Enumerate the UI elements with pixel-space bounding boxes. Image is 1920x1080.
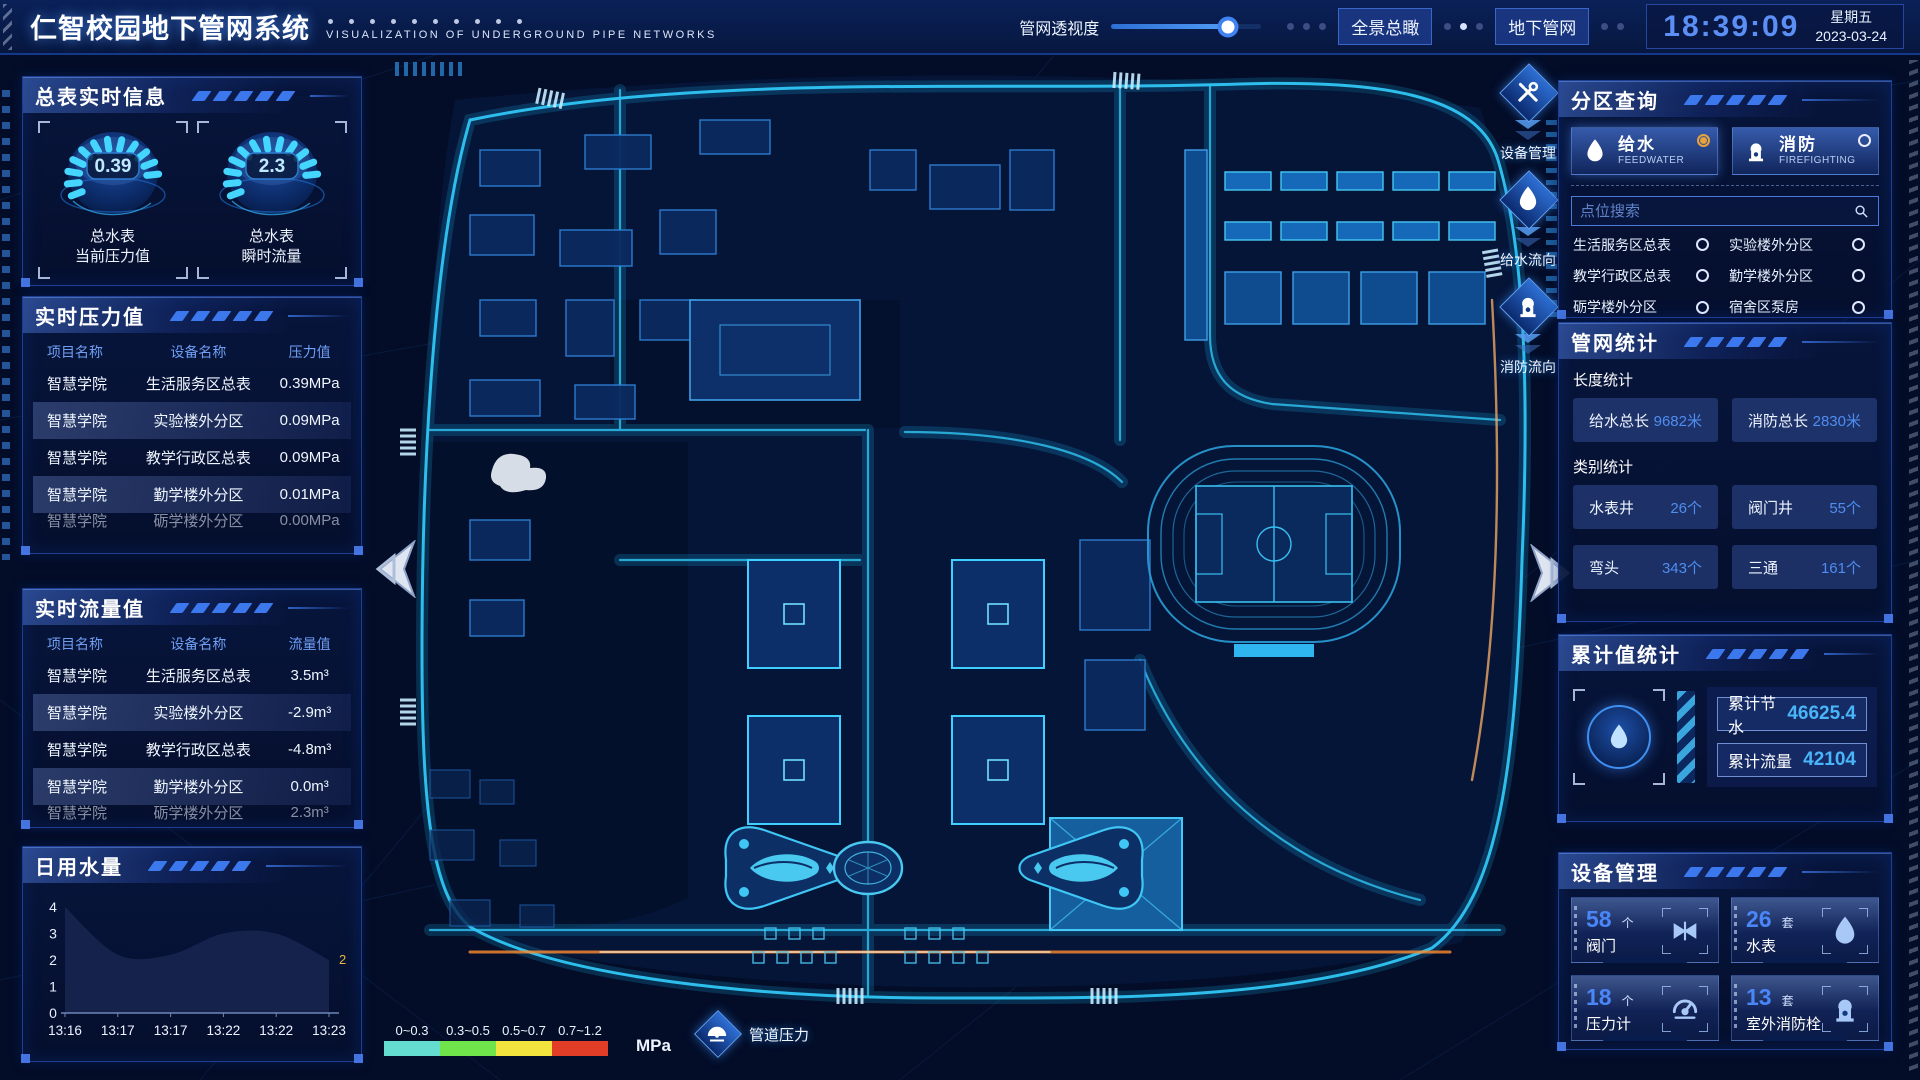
flow-table: 项目名称设备名称流量值智慧学院生活服务区总表3.5m³智慧学院实验楼外分区-2.… xyxy=(23,631,361,820)
app-subtitle-block: VISUALIZATION OF UNDERGROUND PIPE NETWOR… xyxy=(326,13,717,41)
master-meter-panel: 总表实时信息 0.39 总水表当前压力值 2.3 总水表瞬时流量 xyxy=(22,76,362,286)
point-search xyxy=(1571,196,1879,226)
slash-decoration xyxy=(1687,337,1792,347)
slash-decoration xyxy=(151,861,256,871)
map-tool-stack: 设备管理 给水流向 消防流向 xyxy=(1488,66,1568,387)
dashboard-root: { "header": { "title": "仁智校园地下管网系统", "su… xyxy=(0,0,1920,1080)
cumulative-stats-panel: 累计值统计 累计节水46625.4累计流量42104 xyxy=(1558,634,1892,822)
panel-header: 日用水量 xyxy=(23,847,361,883)
pressure-gauge-icon xyxy=(1669,993,1701,1025)
slash-decoration xyxy=(1687,95,1792,105)
cumulative-row: 累计节水46625.4 xyxy=(1717,697,1867,731)
zone-option[interactable]: 生活服务区总表 xyxy=(1573,234,1721,255)
svg-text:13:22: 13:22 xyxy=(259,1023,293,1038)
pipe-network-stats-panel: 管网统计 长度统计 给水总长9682米消防总长2830米 类别统计 水表井26个… xyxy=(1558,322,1892,622)
panel-title: 实时流量值 xyxy=(35,593,145,622)
clock-time: 18:39:09 xyxy=(1663,10,1799,44)
legend-range-label: 0.5~0.7 xyxy=(496,1023,552,1038)
svg-text:3: 3 xyxy=(49,926,57,942)
pipe-opacity-slider: 管网透视度 xyxy=(1019,15,1261,39)
gauge-card: 0.39 总水表当前压力值 xyxy=(38,121,188,279)
gauge-dial: 2.3 xyxy=(209,121,335,233)
slider-track[interactable] xyxy=(1111,24,1261,29)
table-row: 智慧学院勤学楼外分区0.01MPa xyxy=(33,476,351,513)
device-card-阀门[interactable]: 58个 阀门 xyxy=(1571,897,1719,963)
legend-color-segment xyxy=(552,1041,608,1056)
panel-header: 分区查询 xyxy=(1559,81,1891,117)
daily-water-panel: 日用水量 0123413:1613:1713:1713:2213:2213:23… xyxy=(22,846,362,1062)
gauge-label: 总水表瞬时流量 xyxy=(241,227,301,266)
table-row: 智慧学院砺学楼外分区0.00MPa xyxy=(33,513,351,528)
stat-box: 弯头343个 xyxy=(1573,545,1718,589)
panel-title: 总表实时信息 xyxy=(35,81,167,110)
slash-decoration xyxy=(195,91,300,101)
legend-color-segment xyxy=(496,1041,552,1056)
clock-weekday: 星期五 xyxy=(1830,8,1872,27)
slider-knob[interactable] xyxy=(1218,16,1239,37)
dashed-divider xyxy=(1571,185,1879,186)
table-row: 智慧学院勤学楼外分区0.0m³ xyxy=(33,768,351,805)
water-badge xyxy=(1573,689,1665,785)
panorama-button[interactable]: 全景总瞰 xyxy=(1338,8,1432,45)
panel-header: 实时流量值 xyxy=(23,589,361,625)
zone-tab-firefighting[interactable]: 消防FIREFIGHTING xyxy=(1732,127,1879,175)
table-header-row: 项目名称设备名称流量值 xyxy=(33,631,351,657)
device-card-室外消防栓[interactable]: 13套 室外消防栓 xyxy=(1731,975,1879,1041)
clock: 18:39:09 星期五 2023-03-24 xyxy=(1646,4,1904,50)
svg-text:13:22: 13:22 xyxy=(207,1023,241,1038)
stat-box: 水表井26个 xyxy=(1573,485,1718,529)
zone-tabs: 给水FEEDWATER 消防FIREFIGHTING xyxy=(1559,123,1891,185)
pipe-pressure-label: 管道压力 xyxy=(749,1024,809,1045)
gauge-label: 总水表当前压力值 xyxy=(75,227,150,266)
svg-text:2.3: 2.3 xyxy=(258,156,284,177)
dots-decoration xyxy=(1287,23,1326,30)
device-management-panel: 设备管理 58个 阀门 26套 水表 18个 压力计 13套 室外消防栓 xyxy=(1558,852,1892,1050)
search-icon xyxy=(1853,203,1870,220)
length-stats-label: 长度统计 xyxy=(1559,365,1891,398)
device-card-水表[interactable]: 26套 水表 xyxy=(1731,897,1879,963)
pressure-table: 项目名称设备名称压力值智慧学院生活服务区总表0.39MPa智慧学院实验楼外分区0… xyxy=(23,339,361,528)
valve-icon xyxy=(1669,915,1701,947)
device-card-压力计[interactable]: 18个 压力计 xyxy=(1571,975,1719,1041)
option-radio[interactable] xyxy=(1852,301,1865,314)
svg-text:0.39: 0.39 xyxy=(94,156,131,177)
table-row: 智慧学院生活服务区总表0.39MPa xyxy=(33,365,351,402)
search-input[interactable] xyxy=(1580,203,1853,220)
zone-option-list: 生活服务区总表实验楼外分区教学行政区总表勤学楼外分区砺学楼外分区宿舍区泵房 xyxy=(1559,234,1891,318)
option-radio[interactable] xyxy=(1696,301,1709,314)
slider-label: 管网透视度 xyxy=(1019,15,1099,39)
header-dots-decoration xyxy=(328,19,717,24)
stat-box: 阀门井55个 xyxy=(1732,485,1877,529)
left-edge-decoration xyxy=(2,90,10,560)
option-radio[interactable] xyxy=(1852,269,1865,282)
collapse-left-arrow[interactable] xyxy=(370,540,418,598)
panel-header: 设备管理 xyxy=(1559,853,1891,889)
gauge-card: 2.3 总水表瞬时流量 xyxy=(197,121,347,279)
option-radio[interactable] xyxy=(1696,238,1709,251)
water-drop-icon xyxy=(1582,138,1608,164)
tool-label: 给水流向 xyxy=(1500,250,1556,270)
water-drop-icon xyxy=(1829,915,1861,947)
svg-text:4: 4 xyxy=(49,899,57,915)
zone-option[interactable]: 砺学楼外分区 xyxy=(1573,297,1721,318)
svg-text:13:17: 13:17 xyxy=(101,1023,135,1038)
zone-option[interactable]: 实验楼外分区 xyxy=(1729,234,1877,255)
pressure-legend: 0~0.30.3~0.50.5~0.70.7~1.2 MPa 管道压力 xyxy=(384,1012,809,1056)
cumulative-row: 累计流量42104 xyxy=(1717,743,1867,777)
tool-label: 设备管理 xyxy=(1500,143,1556,163)
zone-option[interactable]: 教学行政区总表 xyxy=(1573,265,1721,286)
slash-decoration xyxy=(173,311,278,321)
water-drop-icon xyxy=(1514,185,1542,213)
svg-text:2: 2 xyxy=(339,952,346,967)
zone-option[interactable]: 勤学楼外分区 xyxy=(1729,265,1877,286)
table-row: 智慧学院教学行政区总表-4.8m³ xyxy=(33,731,351,768)
svg-text:13:17: 13:17 xyxy=(154,1023,188,1038)
wrench-icon xyxy=(1514,78,1542,106)
table-row: 智慧学院生活服务区总表3.5m³ xyxy=(33,657,351,694)
panel-header: 实时压力值 xyxy=(23,297,361,333)
pressure-gauge-icon xyxy=(693,1012,741,1056)
app-header: 仁智校园地下管网系统 VISUALIZATION OF UNDERGROUND … xyxy=(0,0,1920,55)
pipe-pressure-flag: 管道压力 xyxy=(693,1012,809,1056)
table-row: 智慧学院砺学楼外分区2.3m³ xyxy=(33,805,351,820)
panel-header: 管网统计 xyxy=(1559,323,1891,359)
legend-color-segment xyxy=(384,1041,440,1056)
stat-box: 给水总长9682米 xyxy=(1573,398,1718,442)
legend-range-label: 0~0.3 xyxy=(384,1023,440,1038)
right-edge-decoration xyxy=(1909,60,1918,1072)
panel-title: 设备管理 xyxy=(1571,857,1659,886)
legend-color-segment xyxy=(440,1041,496,1056)
map-tool-给水流向[interactable]: 给水流向 xyxy=(1499,173,1557,270)
svg-text:0: 0 xyxy=(49,1005,57,1021)
panel-header: 总表实时信息 xyxy=(23,77,361,113)
hydrant-icon xyxy=(1514,292,1542,320)
tab-radio[interactable] xyxy=(1858,134,1871,147)
stat-box: 三通161个 xyxy=(1732,545,1877,589)
panel-title: 管网统计 xyxy=(1571,327,1659,356)
zone-tab-feedwater[interactable]: 给水FEEDWATER xyxy=(1571,127,1718,175)
map-top-tick-decoration xyxy=(395,62,467,76)
cumulative-content: 累计节水46625.4累计流量42104 xyxy=(1559,677,1891,797)
gauge-dial: 0.39 xyxy=(50,121,176,233)
legend-range-label: 0.3~0.5 xyxy=(440,1023,496,1038)
tab-radio[interactable] xyxy=(1697,134,1710,147)
svg-text:1: 1 xyxy=(49,979,57,995)
underground-pipes-button[interactable]: 地下管网 xyxy=(1495,8,1589,45)
legend-color-bar xyxy=(384,1041,608,1056)
slash-decoration xyxy=(1709,649,1814,659)
svg-text:13:16: 13:16 xyxy=(48,1023,82,1038)
svg-text:2: 2 xyxy=(49,952,57,968)
dots-decoration xyxy=(1444,23,1483,30)
svg-text:13:23: 13:23 xyxy=(312,1023,346,1038)
realtime-pressure-panel: 实时压力值 项目名称设备名称压力值智慧学院生活服务区总表0.39MPa智慧学院实… xyxy=(22,296,362,554)
legend-unit: MPa xyxy=(636,1036,671,1056)
panel-title: 累计值统计 xyxy=(1571,639,1681,668)
map-tool-消防流向[interactable]: 消防流向 xyxy=(1499,280,1557,377)
map-tool-设备管理[interactable]: 设备管理 xyxy=(1499,66,1557,163)
category-stats-label: 类别统计 xyxy=(1559,452,1891,485)
app-subtitle: VISUALIZATION OF UNDERGROUND PIPE NETWOR… xyxy=(326,29,717,41)
panel-title: 日用水量 xyxy=(35,851,123,880)
cumulative-values: 累计节水46625.4累计流量42104 xyxy=(1707,687,1877,787)
slash-decoration xyxy=(1687,867,1792,877)
app-title: 仁智校园地下管网系统 xyxy=(30,7,310,46)
slash-decoration xyxy=(173,603,278,613)
dots-decoration xyxy=(1601,23,1624,30)
table-row: 智慧学院实验楼外分区-2.9m³ xyxy=(33,694,351,731)
gauge-row: 0.39 总水表当前压力值 2.3 总水表瞬时流量 xyxy=(23,119,361,281)
clock-date: 2023-03-24 xyxy=(1815,27,1887,46)
panel-title: 分区查询 xyxy=(1571,85,1659,114)
category-stats-grid: 水表井26个阀门井55个弯头343个三通161个 xyxy=(1559,485,1891,603)
option-radio[interactable] xyxy=(1852,238,1865,251)
stat-box: 消防总长2830米 xyxy=(1732,398,1877,442)
length-stats-grid: 给水总长9682米消防总长2830米 xyxy=(1559,398,1891,442)
device-card-grid: 58个 阀门 26套 水表 18个 压力计 13套 室外消防栓 xyxy=(1559,895,1891,1043)
table-row: 智慧学院教学行政区总表0.09MPa xyxy=(33,439,351,476)
zone-query-panel: 分区查询 给水FEEDWATER 消防FIREFIGHTING 生活服务区总表实… xyxy=(1558,80,1892,318)
table-row: 智慧学院实验楼外分区0.09MPa xyxy=(33,402,351,439)
panel-title: 实时压力值 xyxy=(35,301,145,330)
hydrant-icon xyxy=(1829,993,1861,1025)
realtime-flow-panel: 实时流量值 项目名称设备名称流量值智慧学院生活服务区总表3.5m³智慧学院实验楼… xyxy=(22,588,362,828)
tool-label: 消防流向 xyxy=(1500,357,1556,377)
hydrant-icon xyxy=(1743,138,1769,164)
water-drop-icon xyxy=(1604,722,1634,752)
slider-fill xyxy=(1111,24,1228,29)
daily-water-chart: 0123413:1613:1713:1713:2213:2213:232 xyxy=(23,889,361,1056)
legend-range-label: 0.7~1.2 xyxy=(552,1023,608,1038)
zone-option[interactable]: 宿舍区泵房 xyxy=(1729,297,1877,318)
stripe-decoration xyxy=(1677,691,1695,783)
panel-header: 累计值统计 xyxy=(1559,635,1891,671)
option-radio[interactable] xyxy=(1696,269,1709,282)
table-header-row: 项目名称设备名称压力值 xyxy=(33,339,351,365)
legend-range-labels: 0~0.30.3~0.50.5~0.70.7~1.2 xyxy=(384,1023,608,1038)
